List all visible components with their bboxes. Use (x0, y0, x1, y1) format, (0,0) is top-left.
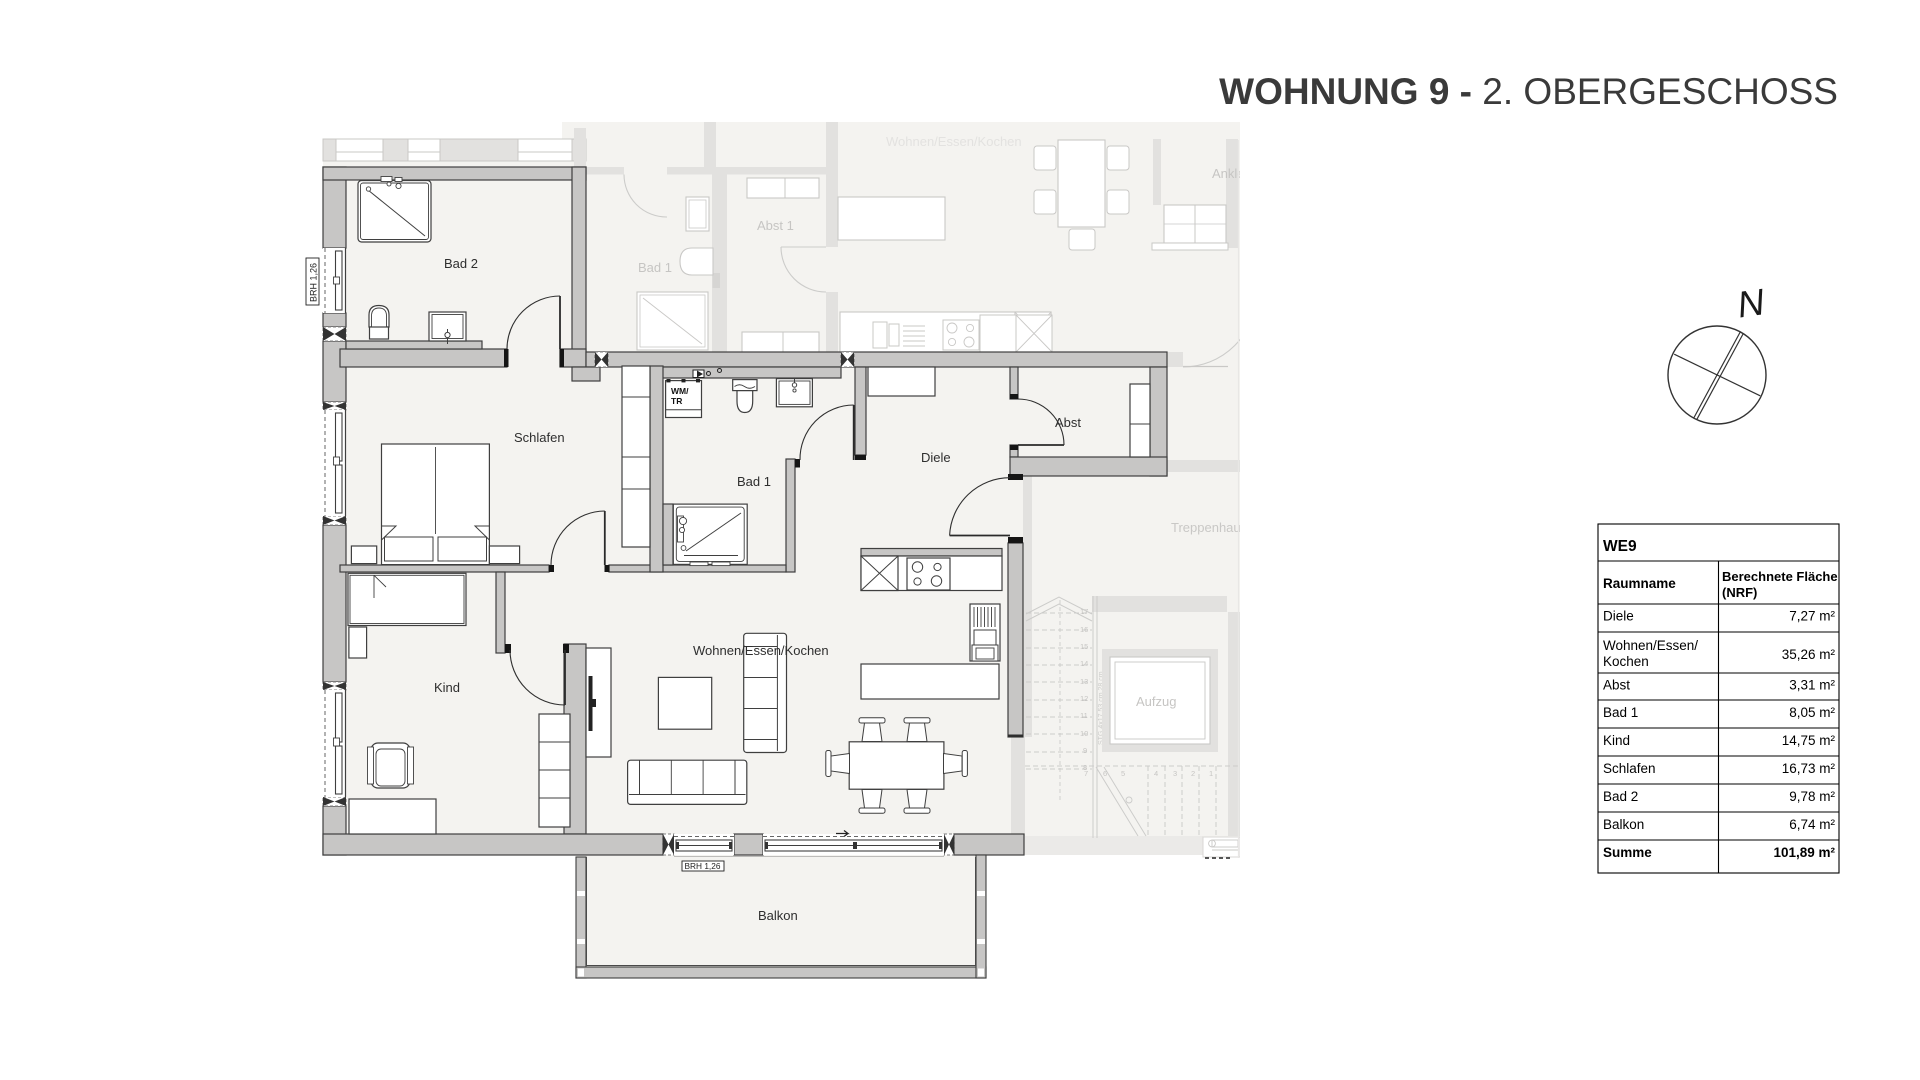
svg-text:Bad 1: Bad 1 (638, 260, 672, 275)
svg-text:3: 3 (1173, 769, 1177, 778)
svg-text:9: 9 (1083, 746, 1087, 755)
svg-text:Raumname: Raumname (1603, 576, 1676, 591)
svg-text:101,89 m²: 101,89 m² (1773, 845, 1835, 860)
svg-text:WOHNUNG 9 - 2. OBERGESCHOSS: WOHNUNG 9 - 2. OBERGESCHOSS (1219, 71, 1838, 112)
svg-text:13: 13 (1080, 677, 1088, 686)
svg-text:Balkon: Balkon (1603, 817, 1644, 832)
svg-text:Bad 1: Bad 1 (1603, 705, 1638, 720)
svg-text:Berechnete Fläche: Berechnete Fläche (1722, 569, 1838, 584)
svg-text:10: 10 (1080, 729, 1088, 738)
svg-text:Abst: Abst (1603, 678, 1630, 693)
svg-text:3,31 m²: 3,31 m² (1789, 678, 1835, 693)
svg-text:Diele: Diele (1603, 609, 1634, 624)
svg-text:1: 1 (1209, 769, 1213, 778)
svg-text:5: 5 (1121, 769, 1125, 778)
svg-text:6,74 m²: 6,74 m² (1789, 817, 1835, 832)
svg-text:8,05 m²: 8,05 m² (1789, 705, 1835, 720)
svg-text:16,73 m²: 16,73 m² (1782, 761, 1836, 776)
svg-text:16: 16 (1080, 625, 1088, 634)
svg-text:Bad 2: Bad 2 (444, 256, 478, 271)
svg-text:7: 7 (1084, 769, 1088, 778)
svg-text:2: 2 (1191, 769, 1195, 778)
svg-text:Bad 2: Bad 2 (1603, 789, 1638, 804)
svg-text:Wohnen/Essen/Kochen: Wohnen/Essen/Kochen (886, 134, 1022, 149)
svg-text:12: 12 (1080, 694, 1088, 703)
svg-text:Treppenhaus: Treppenhaus (1171, 520, 1248, 535)
svg-text:Abst: Abst (1055, 415, 1081, 430)
svg-text:Diele: Diele (921, 450, 951, 465)
svg-text:14,75 m²: 14,75 m² (1782, 733, 1836, 748)
svg-text:Aufzug: Aufzug (1136, 694, 1176, 709)
svg-text:Bad 1: Bad 1 (737, 474, 771, 489)
svg-text:35,26 m²: 35,26 m² (1782, 647, 1836, 662)
svg-text:Summe: Summe (1603, 845, 1652, 860)
svg-text:4: 4 (1154, 769, 1158, 778)
svg-text:WE9: WE9 (1603, 538, 1637, 555)
svg-text:(NRF): (NRF) (1722, 585, 1757, 600)
svg-text:7,27 m²: 7,27 m² (1789, 609, 1835, 624)
svg-text:BRH 1,26: BRH 1,26 (685, 861, 721, 871)
svg-text:6: 6 (1103, 769, 1107, 778)
svg-text:Abst 1: Abst 1 (757, 218, 794, 233)
svg-text:Kind: Kind (1603, 733, 1630, 748)
svg-text:15: 15 (1080, 642, 1088, 651)
svg-text:Kind: Kind (434, 680, 460, 695)
svg-text:Schlafen: Schlafen (1603, 761, 1656, 776)
svg-text:WM/: WM/ (671, 386, 689, 396)
svg-text:Wohnen/Essen/: Wohnen/Essen/ (1603, 638, 1698, 653)
svg-text:Wohnen/Essen/Kochen: Wohnen/Essen/Kochen (693, 643, 829, 658)
svg-text:9,78 m²: 9,78 m² (1789, 789, 1835, 804)
svg-text:11: 11 (1080, 711, 1088, 720)
svg-text:Schlafen: Schlafen (514, 430, 565, 445)
svg-text:17: 17 (1080, 607, 1088, 616)
svg-text:Balkon: Balkon (758, 908, 798, 923)
svg-text:14: 14 (1080, 659, 1088, 668)
svg-text:BRH 1,26: BRH 1,26 (309, 263, 319, 302)
svg-text:TR: TR (671, 396, 682, 406)
svg-text:Kochen: Kochen (1603, 654, 1649, 669)
